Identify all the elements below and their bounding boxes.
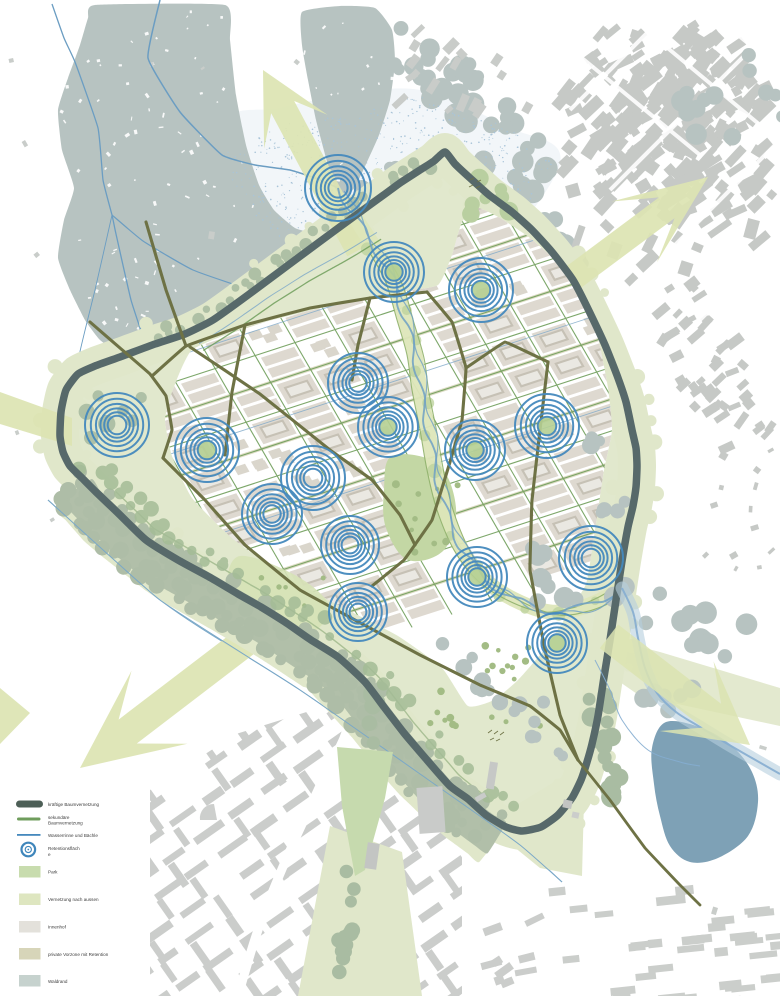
svg-text:Baumvernetzung: Baumvernetzung [48, 821, 83, 826]
svg-text:Wasserrinne und Bächle: Wasserrinne und Bächle [48, 833, 98, 838]
svg-text:sekundäre: sekundäre [48, 815, 70, 820]
svg-text:Waldrand: Waldrand [48, 979, 68, 984]
svg-text:private Vorzone mit Retention: private Vorzone mit Retention [48, 952, 109, 957]
svg-text:Retentionsfläch: Retentionsfläch [48, 846, 80, 851]
svg-text:kräftige Baumvernetzung: kräftige Baumvernetzung [48, 802, 100, 807]
svg-text:e: e [48, 852, 51, 857]
svg-text:Vernetzung nach aussen: Vernetzung nach aussen [48, 897, 99, 902]
svg-text:Park: Park [48, 870, 58, 875]
svg-text:Innenhof: Innenhof [48, 925, 67, 930]
